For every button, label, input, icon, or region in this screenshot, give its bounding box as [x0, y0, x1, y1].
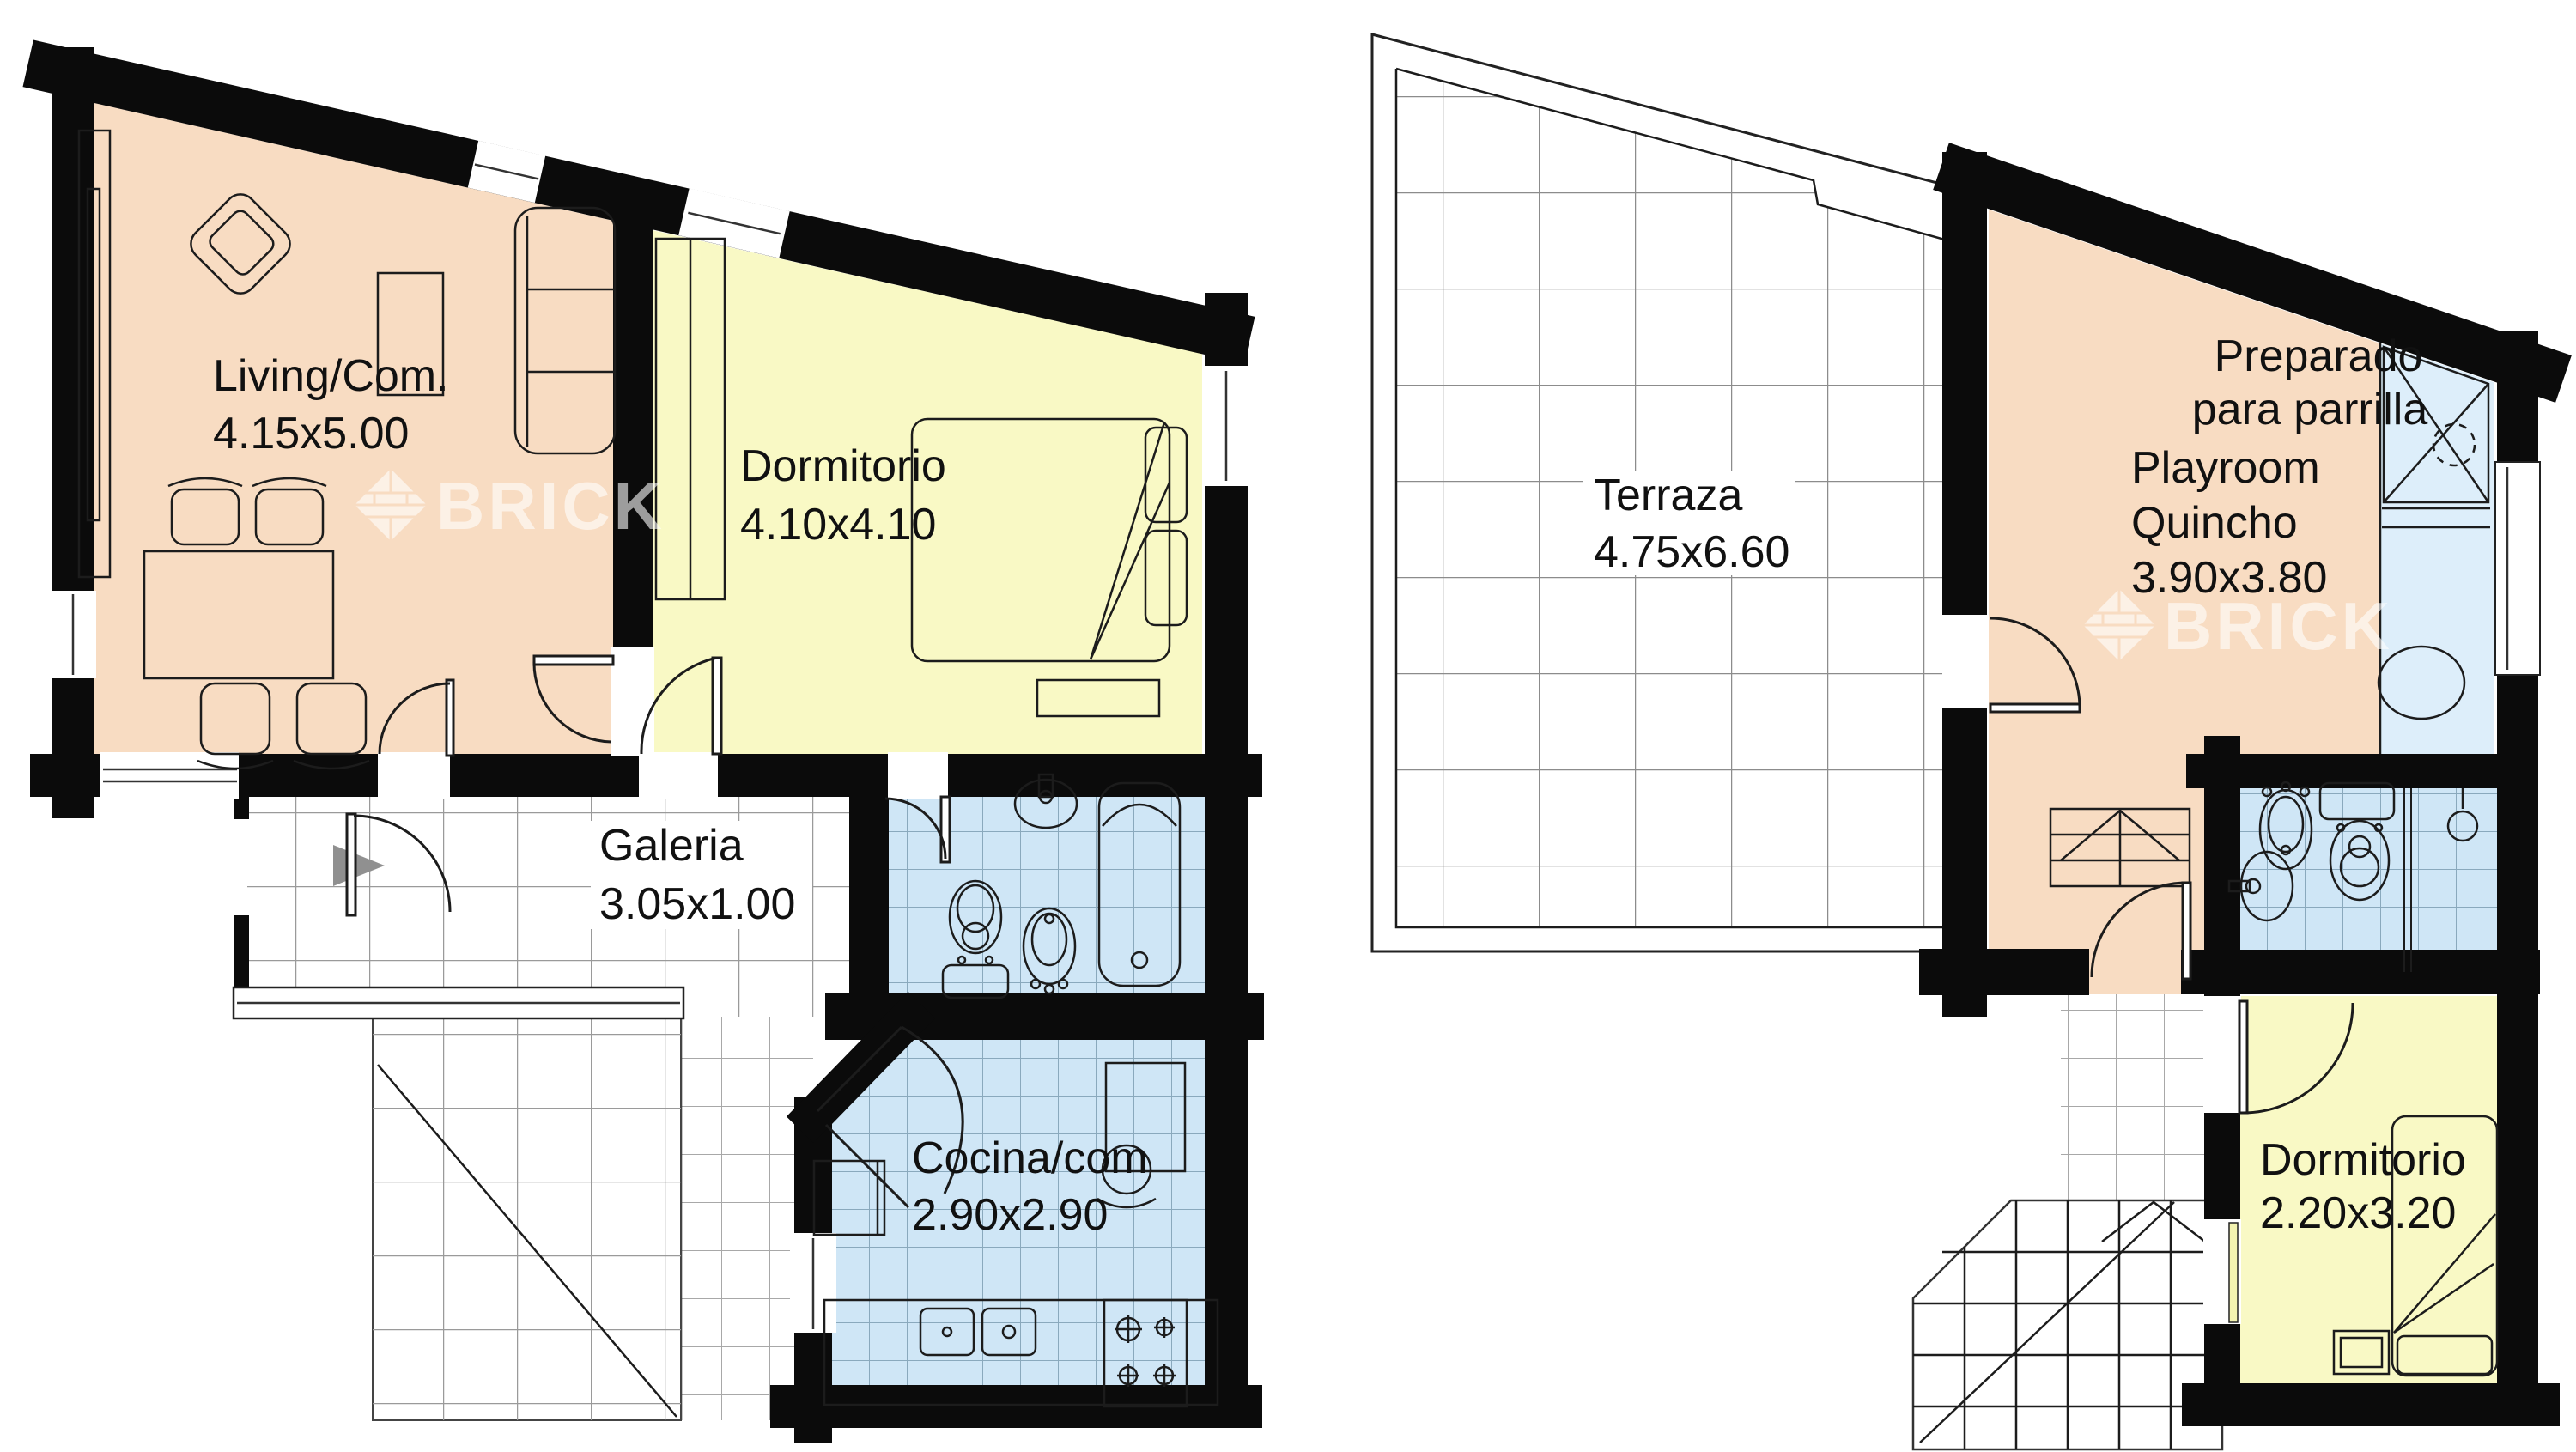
label-parrilla-line2: para parrilla [2192, 385, 2428, 434]
label-terraza-name: Terraza [1594, 471, 1742, 520]
right-plan: BRICK Terraza 4.75x6.60 Preparado para p… [1372, 34, 2540, 1449]
label-living-dims: 4.15x5.00 [213, 409, 409, 459]
label-dormitorio-right-dims: 2.20x3.20 [2260, 1188, 2456, 1238]
label-dormitorio-right-name: Dormitorio [2260, 1135, 2466, 1185]
label-cocina-name: Cocina/com [912, 1133, 1148, 1183]
corridor-left-plan [681, 1017, 813, 1420]
watermark-text: BRICK [436, 468, 665, 544]
window-right-wall [2495, 462, 2540, 675]
galeria-window-band [234, 987, 683, 1018]
label-dormitorio-left-dims: 4.10x4.10 [740, 500, 936, 550]
label-playroom-line2: Quincho [2131, 498, 2298, 548]
outdoor-stairs-right [1913, 1200, 2222, 1449]
label-dormitorio-left-name: Dormitorio [740, 441, 946, 491]
floor-plan-canvas: BRICK Living/Com. 4.15x5.00 Dormitorio 4… [0, 0, 2576, 1452]
label-parrilla-line1: Preparado [2215, 331, 2423, 381]
label-living-name: Living/Com. [213, 351, 449, 401]
label-playroom-line1: Playroom [2131, 443, 2320, 493]
window-bedroom [2203, 1219, 2241, 1324]
left-plan: BRICK Living/Com. 4.15x5.00 Dormitorio 4… [50, 69, 1250, 1424]
label-cocina-dims: 2.90x2.90 [912, 1190, 1108, 1240]
label-playroom-dims: 3.90x3.80 [2131, 553, 2327, 603]
label-galeria-dims: 3.05x1.00 [599, 879, 795, 929]
label-galeria-name: Galeria [599, 821, 744, 871]
label-terraza-dims: 4.75x6.60 [1594, 527, 1789, 577]
outdoor-steps-left [373, 1017, 681, 1420]
